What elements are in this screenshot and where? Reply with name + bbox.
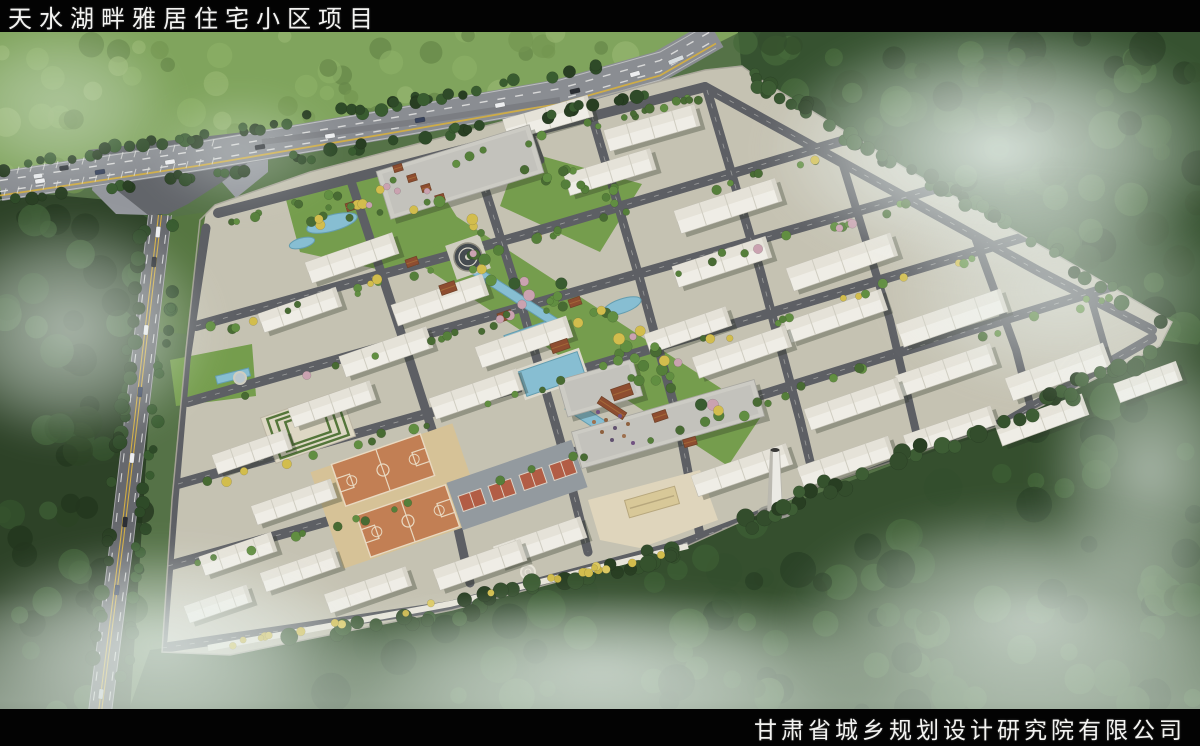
title-bar: 天水湖畔雅居住宅小区项目 — [0, 0, 1200, 32]
rendering-page: 天水湖畔雅居住宅小区项目 甘肃省城乡规划设计研究院有限公司 — [0, 0, 1200, 746]
footer-bar: 甘肃省城乡规划设计研究院有限公司 — [0, 709, 1200, 746]
aerial-rendering-scene — [0, 0, 1200, 746]
atmosphere-tint — [0, 0, 1200, 746]
company-name: 甘肃省城乡规划设计研究院有限公司 — [754, 711, 1200, 745]
project-title: 天水湖畔雅居住宅小区项目 — [0, 0, 380, 34]
